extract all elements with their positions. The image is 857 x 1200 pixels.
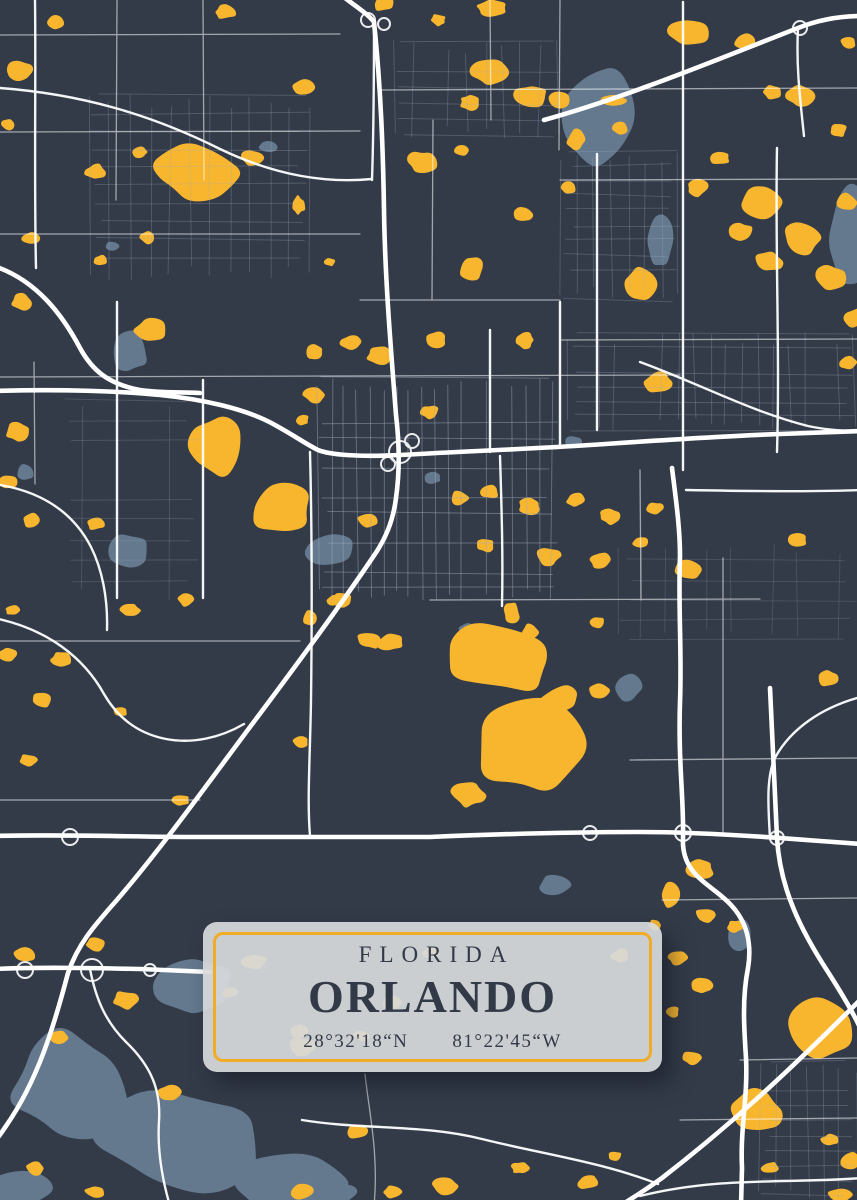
road	[686, 490, 857, 491]
latitude-value: 28°32'18“N	[303, 1031, 408, 1053]
coordinates: 28°32'18“N 81°22'45“W	[303, 1031, 562, 1053]
city-title: ORLANDO	[308, 972, 557, 1022]
map-title-card: FLORIDA ORLANDO 28°32'18“N 81°22'45“W	[203, 922, 662, 1072]
state-label: FLORIDA	[351, 941, 515, 969]
map-poster: FLORIDA ORLANDO 28°32'18“N 81°22'45“W	[0, 0, 857, 1200]
longitude-value: 81°22'45“W	[452, 1031, 561, 1053]
title-card-gold-frame: FLORIDA ORLANDO 28°32'18“N 81°22'45“W	[213, 932, 652, 1062]
lake	[788, 533, 806, 547]
minor-street	[169, 407, 170, 600]
lake	[710, 152, 729, 164]
minor-street	[249, 98, 250, 272]
road	[35, 0, 36, 268]
road	[777, 148, 778, 452]
